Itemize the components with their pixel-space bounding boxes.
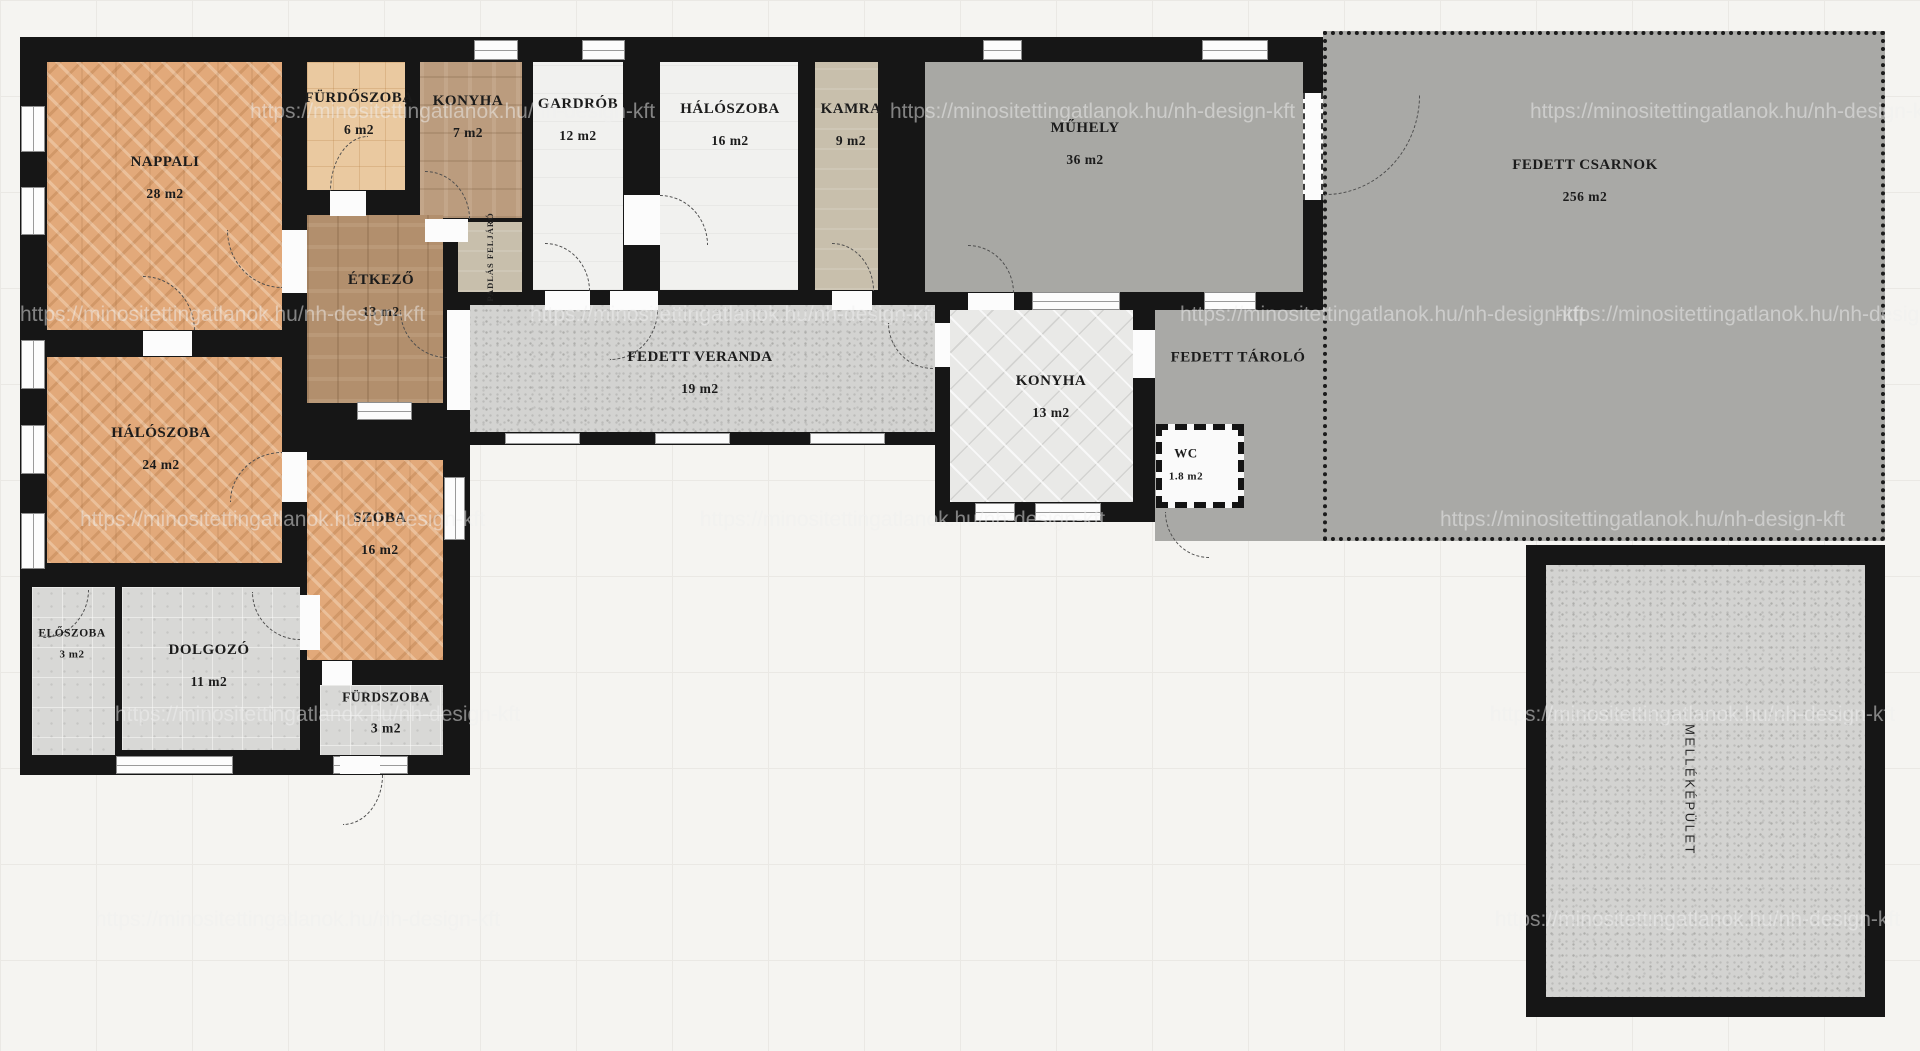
- veranda-opening: [810, 433, 885, 444]
- door-opening: [610, 291, 658, 310]
- room-label-konyha-felso: KONYHA7 m2: [433, 93, 504, 141]
- door-opening: [282, 230, 307, 293]
- window: [21, 340, 45, 389]
- room-label-fedett-veranda: FEDETT VERANDA19 m2: [627, 349, 772, 397]
- window: [21, 187, 45, 235]
- door-opening: [340, 756, 380, 774]
- watermark: https://minositettingatlanok.hu/nh-desig…: [95, 908, 500, 932]
- door-opening: [968, 293, 1014, 310]
- window: [983, 40, 1022, 60]
- window: [357, 402, 412, 420]
- door-opening: [300, 595, 320, 650]
- room-label-wc: WC1.8 m2: [1169, 446, 1203, 483]
- veranda-opening: [655, 433, 730, 444]
- room-label-konyha: KONYHA13 m2: [1016, 373, 1087, 421]
- room-label-eloszoba: ELŐSZOBA3 m2: [38, 628, 105, 661]
- room-mellekepulet: [1546, 565, 1865, 997]
- room-label-kamra: KAMRA9 m2: [821, 101, 882, 149]
- door-opening: [447, 310, 470, 410]
- window: [1204, 292, 1256, 310]
- door-arc: [343, 775, 383, 825]
- room-szoba: [307, 460, 443, 660]
- window: [116, 756, 233, 774]
- veranda-opening: [505, 433, 580, 444]
- room-label-szoba: SZOBA16 m2: [353, 510, 406, 558]
- room-label-gardrob: GARDRÓB12 m2: [538, 96, 618, 144]
- door-opening: [282, 452, 307, 502]
- door-opening: [1303, 93, 1323, 200]
- room-label-dolgozo: DOLGOZÓ11 m2: [168, 642, 249, 690]
- door-opening: [935, 323, 950, 367]
- room-label-padlas-feljaro: PADLÁS FELJÁRÓ: [485, 212, 495, 301]
- window: [444, 477, 465, 540]
- door-opening: [425, 219, 468, 242]
- room-label-furdszoba: FÜRDSZOBA3 m2: [342, 690, 430, 737]
- window: [1202, 40, 1268, 60]
- door-opening: [545, 291, 590, 310]
- room-label-fedett-tarolo: FEDETT TÁROLÓ: [1171, 350, 1306, 367]
- door-opening: [143, 331, 192, 356]
- window: [582, 40, 625, 60]
- window: [1035, 503, 1101, 521]
- room-label-nappali: NAPPALI28 m2: [130, 154, 199, 202]
- window: [21, 513, 45, 569]
- room-label-haloszoba-felso: HÁLÓSZOBA16 m2: [680, 101, 780, 149]
- room-label-mellekepulet: MELLÉKÉPÜLET: [1683, 724, 1698, 856]
- room-haloszoba-felso: [660, 62, 798, 290]
- room-label-haloszoba: HÁLÓSZOBA24 m2: [111, 425, 211, 473]
- door-opening: [330, 191, 366, 216]
- window: [21, 425, 45, 474]
- floor-plan: NAPPALI28 m2 FÜRDŐSZOBA6 m2 KONYHA7 m2 G…: [0, 0, 1920, 1051]
- window: [1032, 292, 1120, 310]
- door-arc: [1165, 512, 1209, 558]
- door-opening: [1133, 330, 1155, 378]
- window: [21, 106, 45, 152]
- door-opening: [322, 661, 352, 685]
- window: [975, 503, 1015, 521]
- room-label-etkezo: ÉTKEZŐ13 m2: [348, 272, 414, 320]
- room-label-furdoszoba-felso: FÜRDŐSZOBA6 m2: [304, 90, 413, 138]
- window: [474, 40, 518, 60]
- door-opening: [624, 195, 660, 245]
- door-opening: [832, 291, 872, 310]
- room-label-muhely: MŰHELY36 m2: [1050, 120, 1119, 168]
- room-label-fedett-csarnok: FEDETT CSARNOK256 m2: [1512, 157, 1658, 205]
